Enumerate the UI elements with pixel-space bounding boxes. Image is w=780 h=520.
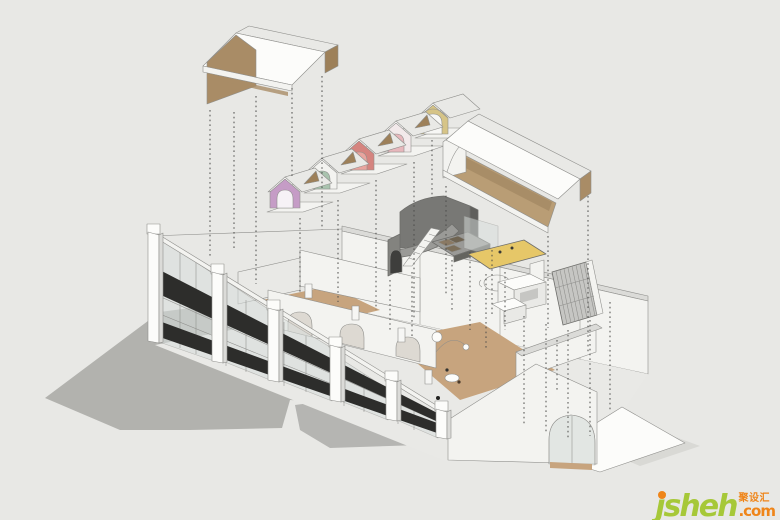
pendant-lamp xyxy=(432,332,442,342)
watermark-brand: jsheh xyxy=(655,494,736,520)
watermark-logo: jsheh 聚设汇 .com xyxy=(655,494,775,520)
watermark-dot-accent xyxy=(658,491,666,499)
facade-pier xyxy=(147,224,163,343)
arc-lamp-shade xyxy=(463,344,469,350)
watermark-tld: .com xyxy=(738,504,775,519)
round-side-table xyxy=(445,374,459,382)
facade-pier xyxy=(267,300,283,382)
facade-pier xyxy=(211,264,227,363)
rendering-canvas: jsheh 聚设汇 .com xyxy=(0,0,780,520)
